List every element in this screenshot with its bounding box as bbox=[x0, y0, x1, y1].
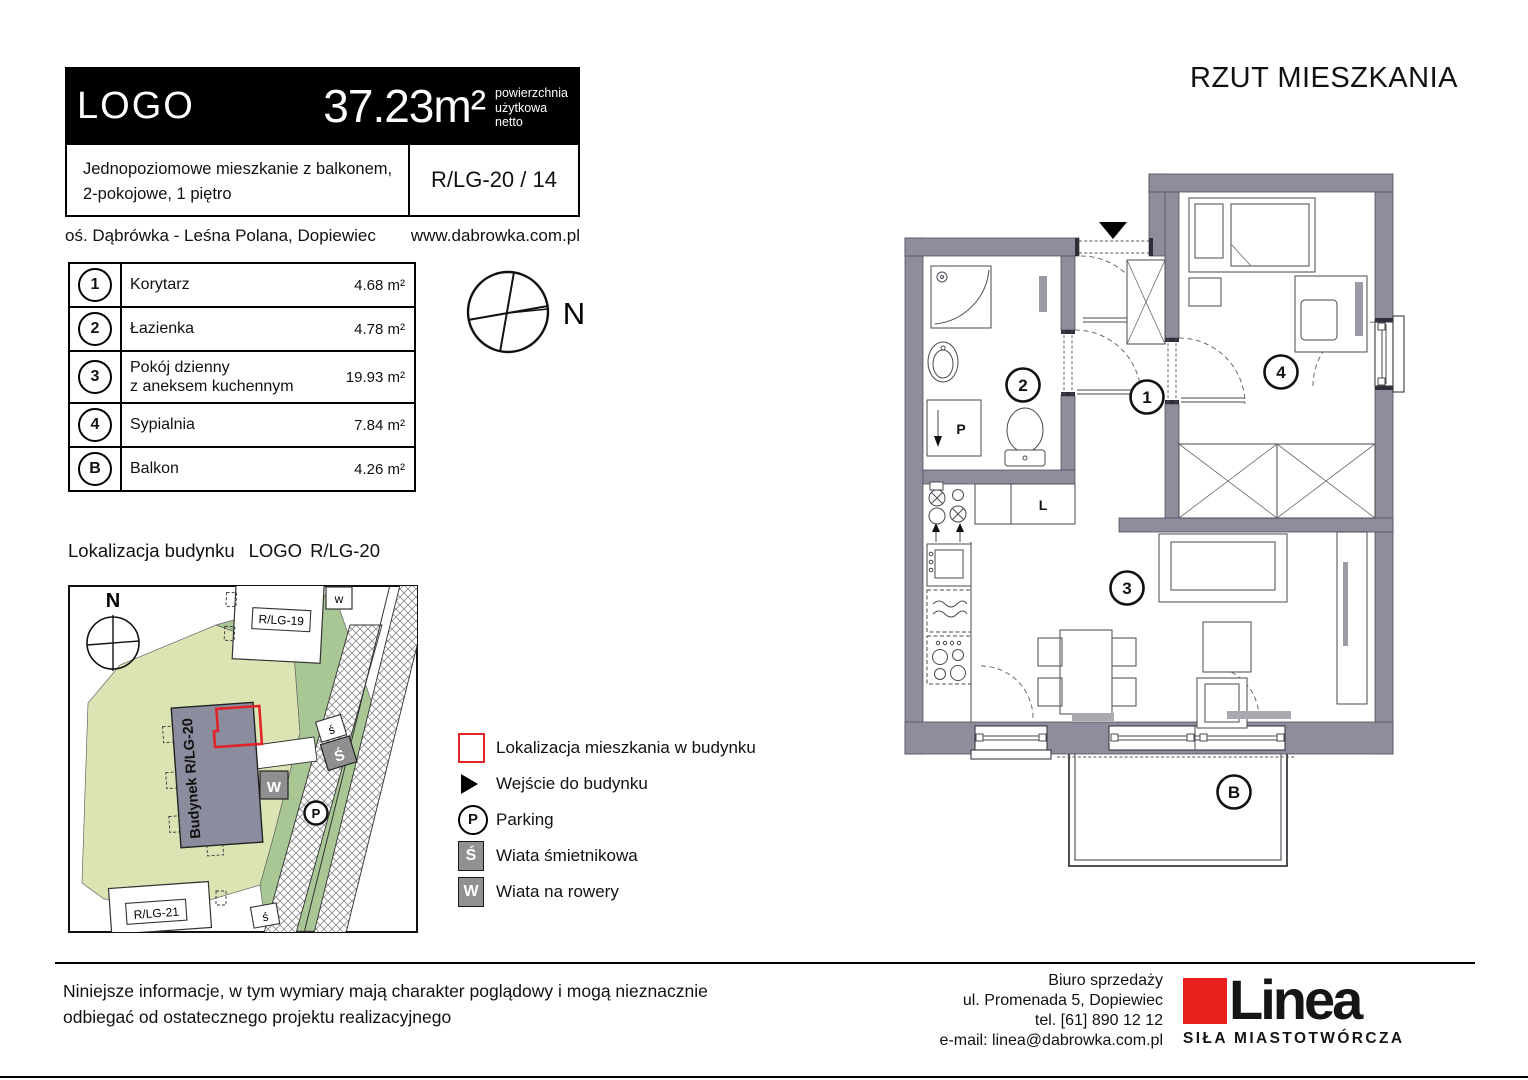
room-name: Korytarz bbox=[122, 271, 313, 298]
fridge-label: L bbox=[1039, 497, 1048, 513]
site-plan-heading: Lokalizacja budynkuLOGOR/LG-20 bbox=[68, 540, 380, 562]
table-row: 2 Łazienka 4.78 m² bbox=[70, 308, 414, 352]
site-heading-prefix: Lokalizacja budynku bbox=[68, 540, 235, 561]
plumbing-risers bbox=[929, 482, 966, 542]
building-rlg19: R/LG-19 bbox=[223, 585, 324, 663]
compass-rose-icon: N bbox=[462, 264, 594, 360]
apartment-description-line2: 2-pokojowe, 1 piętro bbox=[83, 182, 396, 207]
area-note-line: powierzchnia bbox=[495, 86, 568, 100]
legend-label: Wiata na rowery bbox=[496, 882, 619, 902]
room-number-badge: 4 bbox=[78, 408, 112, 442]
doormat bbox=[1227, 711, 1291, 719]
room-number-badge: 1 bbox=[78, 268, 112, 302]
legend-label: Lokalizacja mieszkania w budynku bbox=[496, 738, 756, 758]
living-room-furniture bbox=[1038, 532, 1367, 728]
area-note: powierzchnia użytkowa netto bbox=[495, 82, 568, 129]
toilet-icon bbox=[1007, 408, 1043, 452]
room-label-b: B bbox=[1228, 783, 1240, 802]
chair-icon bbox=[1112, 678, 1136, 706]
bathroom-fixtures: P bbox=[927, 266, 1047, 466]
table-row: B Balkon 4.26 m² bbox=[70, 448, 414, 492]
room-label-1: 1 bbox=[1142, 388, 1151, 407]
site-map: R/LG-19 w R/LG-21 Budynek R/LG-20 bbox=[68, 585, 418, 933]
chair-icon bbox=[1038, 678, 1062, 706]
entrance-arrow-icon bbox=[461, 774, 478, 794]
building-rlg19-label: R/LG-19 bbox=[258, 612, 304, 628]
room-number-badge: 3 bbox=[78, 360, 112, 394]
legend-label: Wejście do budynku bbox=[496, 774, 648, 794]
legend-row: Lokalizacja mieszkania w budynku bbox=[458, 733, 758, 762]
apartment-plan-page: LOGO 37.23m² powierzchnia użytkowa netto… bbox=[0, 0, 1528, 1080]
disclaimer-line2: odbiegać od ostatecznego projektu realiz… bbox=[63, 1004, 708, 1030]
area-value: 37.23m² bbox=[323, 79, 485, 133]
header-caption-row: oś. Dąbrówka - Leśna Polana, Dopiewiec w… bbox=[65, 226, 580, 246]
room-name: Pokój dzienny bbox=[130, 358, 305, 377]
estate-location: oś. Dąbrówka - Leśna Polana, Dopiewiec bbox=[65, 226, 376, 246]
sales-office-contact: Biuro sprzedaży ul. Promenada 5, Dopiewi… bbox=[940, 971, 1163, 1051]
website-url: www.dabrowka.com.pl bbox=[411, 226, 580, 246]
table-row: 1 Korytarz 4.68 m² bbox=[70, 264, 414, 308]
office-address: ul. Promenada 5, Dopiewiec bbox=[940, 991, 1163, 1011]
table-row: 3 Pokój dzienny z aneksem kuchennym 19.9… bbox=[70, 352, 414, 404]
monitor-icon bbox=[1355, 282, 1363, 336]
linea-brand-logo: Linea SIŁA MIASTOTWÓRCZA bbox=[1183, 974, 1423, 1048]
room-name: Łazienka bbox=[122, 315, 313, 342]
room-label-4: 4 bbox=[1276, 363, 1286, 382]
apartment-outline-icon bbox=[458, 733, 485, 763]
room-name-line2: z aneksem kuchennym bbox=[130, 377, 305, 396]
header-black-bar: LOGO 37.23m² powierzchnia użytkowa netto bbox=[65, 67, 580, 145]
balcony bbox=[1057, 754, 1295, 866]
washer-label: P bbox=[956, 421, 965, 437]
room-area: 4.26 m² bbox=[313, 461, 414, 478]
legend: Lokalizacja mieszkania w budynku Wejście… bbox=[458, 733, 758, 913]
room-name: Sypialnia bbox=[122, 411, 313, 438]
entrance-arrow-icon bbox=[1099, 222, 1127, 239]
doormat bbox=[1072, 713, 1114, 721]
radiator-icon bbox=[1039, 276, 1047, 312]
room-area: 7.84 m² bbox=[313, 417, 414, 434]
brand-name: Linea bbox=[1229, 974, 1360, 1026]
chair-icon bbox=[1038, 638, 1062, 666]
room-number-badge: 2 bbox=[78, 312, 112, 346]
legend-label: Wiata śmietnikowa bbox=[496, 846, 638, 866]
kitchen: L bbox=[927, 484, 1075, 722]
apartment-description-line1: Jednopoziomowe mieszkanie z balkonem, bbox=[83, 157, 396, 182]
chair-icon bbox=[1112, 638, 1136, 666]
bike-shed-small-label: w bbox=[334, 592, 344, 606]
north-label: N bbox=[563, 296, 585, 331]
room-area-table: 1 Korytarz 4.68 m² 2 Łazienka 4.78 m² 3 … bbox=[68, 262, 416, 492]
room-area: 4.68 m² bbox=[313, 277, 414, 294]
area-note-line: netto bbox=[495, 115, 568, 129]
office-phone: tel. [61] 890 12 12 bbox=[940, 1011, 1163, 1031]
disclaimer-line1: Niniejsze informacje, w tym wymiary mają… bbox=[63, 978, 708, 1004]
office-email: e-mail: linea@dabrowka.com.pl bbox=[940, 1031, 1163, 1051]
room-label-2: 2 bbox=[1018, 376, 1027, 395]
room-area: 4.78 m² bbox=[313, 321, 414, 338]
room-number-badge: B bbox=[78, 452, 112, 486]
bed-icon bbox=[1189, 198, 1315, 272]
unit-code: R/LG-20 / 14 bbox=[410, 145, 578, 215]
legend-row: Wejście do budynku bbox=[458, 769, 758, 798]
nightstand-icon bbox=[1189, 278, 1221, 306]
desk-chair-icon bbox=[1301, 300, 1337, 340]
developer-logo: LOGO bbox=[77, 85, 195, 128]
brand-tagline: SIŁA MIASTOTWÓRCZA bbox=[1183, 1030, 1423, 1048]
parking-marker-label: P bbox=[312, 806, 321, 821]
footer-separator bbox=[55, 962, 1475, 964]
coffee-table-icon bbox=[1203, 622, 1251, 672]
site-heading-logo: LOGO bbox=[249, 540, 302, 561]
site-heading-code: R/LG-20 bbox=[310, 540, 380, 561]
page-bottom-border bbox=[0, 1076, 1528, 1078]
kitchen-worktop bbox=[975, 484, 1075, 524]
office-name: Biuro sprzedaży bbox=[940, 971, 1163, 991]
legend-row: W Wiata na rowery bbox=[458, 877, 758, 906]
sofa-icon bbox=[1159, 534, 1287, 602]
tv-cabinet-icon bbox=[1337, 532, 1367, 704]
header-card: LOGO 37.23m² powierzchnia użytkowa netto… bbox=[65, 67, 580, 246]
plan-title: RZUT MIESZKANIA bbox=[1190, 62, 1458, 95]
header-info-row: Jednopoziomowe mieszkanie z balkonem, 2-… bbox=[65, 145, 580, 217]
building-rlg21: R/LG-21 bbox=[109, 882, 226, 933]
legend-row: Ś Wiata śmietnikowa bbox=[458, 841, 758, 870]
bike-shed-label: W bbox=[267, 779, 282, 796]
floor-plan: P L bbox=[897, 160, 1412, 875]
disclaimer: Niniejsze informacje, w tym wymiary mają… bbox=[63, 978, 708, 1030]
table-row: 4 Sypialnia 7.84 m² bbox=[70, 404, 414, 448]
washing-machine-icon bbox=[927, 400, 981, 456]
bike-shed-icon: W bbox=[458, 877, 484, 907]
room-area: 19.93 m² bbox=[313, 369, 414, 386]
site-north-label: N bbox=[106, 590, 120, 612]
room-name: Balkon bbox=[122, 455, 313, 482]
legend-label: Parking bbox=[496, 810, 554, 830]
area-note-line: użytkowa bbox=[495, 101, 568, 115]
brand-red-square-icon bbox=[1183, 978, 1227, 1024]
apartment-description: Jednopoziomowe mieszkanie z balkonem, 2-… bbox=[67, 145, 410, 215]
corridor-wardrobe bbox=[1127, 260, 1165, 344]
trash-shed-icon: Ś bbox=[458, 841, 484, 871]
legend-row: P Parking bbox=[458, 805, 758, 834]
parking-icon: P bbox=[458, 805, 488, 835]
room-label-3: 3 bbox=[1122, 579, 1131, 598]
dining-table-icon bbox=[1060, 630, 1112, 714]
